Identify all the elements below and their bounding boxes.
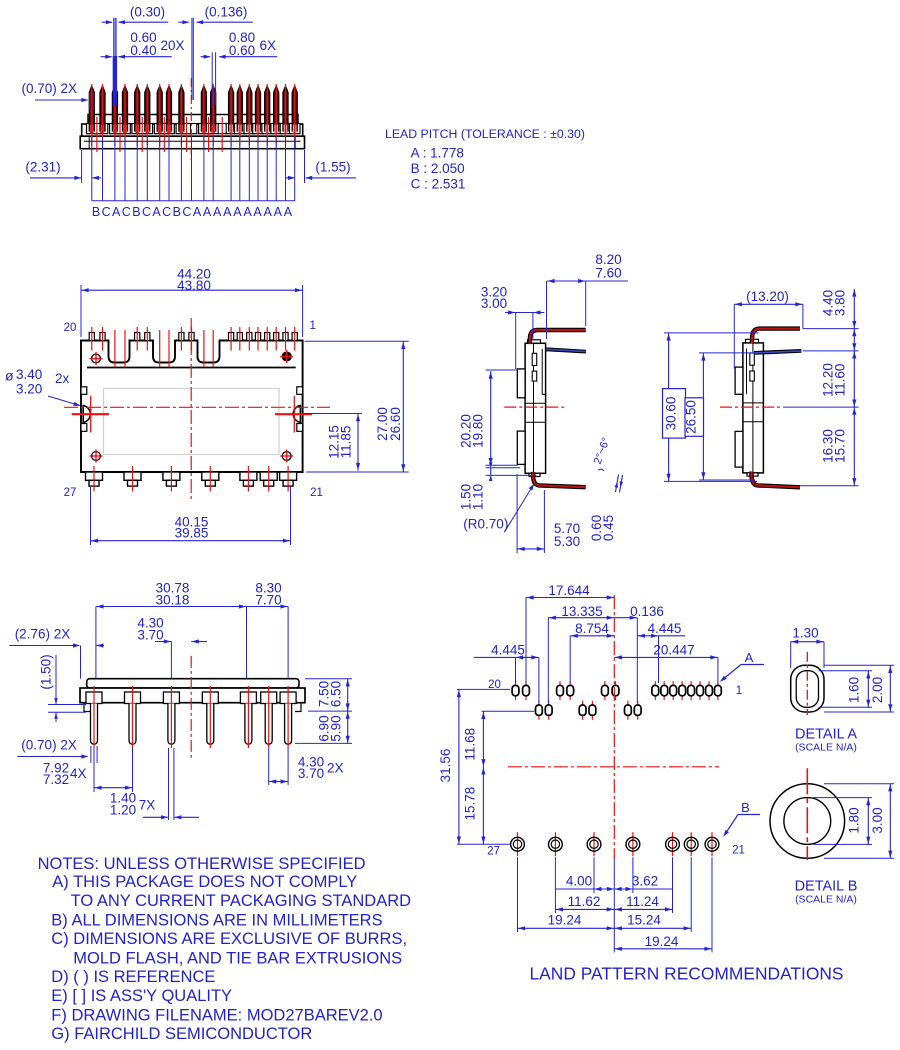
svg-text:(SCALE N/A): (SCALE N/A) bbox=[795, 742, 857, 754]
svg-text:11.24: 11.24 bbox=[626, 894, 659, 909]
svg-text:C: C bbox=[182, 205, 191, 219]
svg-text:0.40: 0.40 bbox=[130, 43, 156, 58]
svg-text:1.10: 1.10 bbox=[471, 484, 486, 510]
svg-text:0.136: 0.136 bbox=[630, 604, 664, 619]
svg-text:2X: 2X bbox=[327, 761, 344, 776]
svg-text:(R0.70): (R0.70) bbox=[463, 517, 508, 532]
svg-text:11.68: 11.68 bbox=[463, 728, 478, 761]
svg-text:F) DRAWING FILENAME: MOD27BARE: F) DRAWING FILENAME: MOD27BAREV2.0 bbox=[51, 1006, 382, 1024]
svg-text:C) DIMENSIONS ARE EXCLUSIVE OF: C) DIMENSIONS ARE EXCLUSIVE OF BURRS, bbox=[51, 930, 407, 948]
svg-text:17.644: 17.644 bbox=[548, 583, 590, 598]
svg-text:G) FAIRCHILD SEMICONDUCTOR: G) FAIRCHILD SEMICONDUCTOR bbox=[51, 1025, 312, 1043]
svg-text:27: 27 bbox=[487, 846, 500, 858]
svg-text:3.62: 3.62 bbox=[632, 873, 658, 888]
svg-text:19.80: 19.80 bbox=[471, 414, 486, 448]
svg-text:A: A bbox=[243, 205, 252, 219]
svg-text:NOTES: UNLESS OTHERWISE SPECIF: NOTES: UNLESS OTHERWISE SPECIFIED bbox=[38, 855, 366, 873]
svg-text:A: A bbox=[274, 205, 283, 219]
svg-text:(2.31): (2.31) bbox=[25, 160, 60, 175]
svg-text:4.445: 4.445 bbox=[648, 621, 682, 636]
svg-text:19.24: 19.24 bbox=[645, 934, 679, 949]
svg-text:3.20: 3.20 bbox=[16, 382, 42, 397]
svg-text:3.70: 3.70 bbox=[298, 766, 324, 781]
svg-text:7X: 7X bbox=[139, 797, 156, 812]
svg-text:4X: 4X bbox=[70, 766, 87, 781]
svg-text:3.80: 3.80 bbox=[833, 290, 848, 316]
svg-text:43.80: 43.80 bbox=[177, 278, 211, 293]
svg-text:20X: 20X bbox=[161, 38, 185, 53]
svg-text:C: C bbox=[102, 205, 111, 219]
svg-text:31.56: 31.56 bbox=[438, 749, 453, 783]
svg-text:C: C bbox=[162, 205, 171, 219]
svg-text:(0.30): (0.30) bbox=[130, 5, 165, 20]
svg-text:B: B bbox=[92, 205, 100, 219]
svg-text:B : 2.050: B : 2.050 bbox=[411, 161, 465, 176]
svg-text:DETAIL B: DETAIL B bbox=[795, 879, 858, 895]
svg-text:8.754: 8.754 bbox=[575, 621, 609, 636]
svg-text:A: A bbox=[233, 205, 242, 219]
svg-text:26.60: 26.60 bbox=[388, 407, 403, 441]
svg-text:15.24: 15.24 bbox=[627, 913, 661, 928]
svg-text:1.60: 1.60 bbox=[847, 677, 862, 703]
svg-text:C: C bbox=[142, 205, 151, 219]
svg-text:11.60: 11.60 bbox=[833, 364, 848, 397]
svg-text:B: B bbox=[132, 205, 140, 219]
svg-text:6.50: 6.50 bbox=[329, 681, 344, 707]
svg-text:E) [ ] IS ASS'Y QUALITY: E) [ ] IS ASS'Y QUALITY bbox=[51, 987, 232, 1005]
svg-text:DETAIL A: DETAIL A bbox=[795, 727, 857, 743]
svg-text:30.18: 30.18 bbox=[156, 592, 190, 607]
svg-text:1: 1 bbox=[736, 685, 742, 697]
svg-text:A: A bbox=[152, 205, 161, 219]
svg-text:30.60: 30.60 bbox=[664, 397, 679, 431]
svg-text:A: A bbox=[112, 205, 121, 219]
svg-text:3.70: 3.70 bbox=[137, 627, 163, 642]
svg-text:21: 21 bbox=[732, 845, 745, 857]
svg-text:(1.55): (1.55) bbox=[315, 160, 350, 175]
svg-text:A: A bbox=[193, 205, 202, 219]
svg-text:LEAD PITCH (TOLERANCE : ±0.30): LEAD PITCH (TOLERANCE : ±0.30) bbox=[385, 127, 585, 141]
svg-text:D) ( ) IS REFERENCE: D) ( ) IS REFERENCE bbox=[51, 968, 215, 986]
svg-text:TO ANY CURRENT PACKAGING STAND: TO ANY CURRENT PACKAGING STANDARD bbox=[71, 892, 412, 910]
svg-text:1.80: 1.80 bbox=[847, 807, 862, 833]
svg-text:11.85: 11.85 bbox=[339, 426, 354, 459]
svg-text:1.20: 1.20 bbox=[110, 802, 136, 817]
svg-text:MOLD FLASH, AND TIE BAR EXTRUS: MOLD FLASH, AND TIE BAR EXTRUSIONS bbox=[73, 949, 402, 967]
svg-text:C : 2.531: C : 2.531 bbox=[411, 177, 466, 192]
svg-text:B: B bbox=[741, 800, 750, 815]
svg-text:1: 1 bbox=[309, 320, 315, 332]
svg-text:A: A bbox=[223, 205, 232, 219]
svg-text:B) ALL DIMENSIONS ARE IN MILLI: B) ALL DIMENSIONS ARE IN MILLIMETERS bbox=[51, 911, 382, 929]
svg-text:3.00: 3.00 bbox=[481, 296, 507, 311]
svg-text:(1.50): (1.50) bbox=[39, 654, 54, 689]
svg-text:26.50: 26.50 bbox=[684, 400, 699, 434]
svg-text:A: A bbox=[253, 205, 262, 219]
svg-text:0.60: 0.60 bbox=[229, 43, 255, 58]
svg-text:27: 27 bbox=[64, 487, 77, 499]
svg-text:(2.76) 2X: (2.76) 2X bbox=[15, 627, 71, 642]
svg-text:20: 20 bbox=[64, 322, 77, 334]
svg-text:13.335: 13.335 bbox=[561, 604, 602, 619]
svg-text:LAND PATTERN RECOMMENDATIONS: LAND PATTERN RECOMMENDATIONS bbox=[530, 964, 844, 984]
svg-text:39.85: 39.85 bbox=[175, 525, 209, 540]
svg-text:2.00: 2.00 bbox=[870, 677, 885, 703]
svg-text:ø: ø bbox=[5, 368, 14, 384]
svg-text:(0.136): (0.136) bbox=[205, 5, 248, 20]
svg-text:15.78: 15.78 bbox=[463, 787, 478, 821]
svg-text:7.70: 7.70 bbox=[255, 592, 281, 607]
svg-text:A : 1.778: A : 1.778 bbox=[411, 146, 464, 161]
svg-text:(0.70) 2X: (0.70) 2X bbox=[22, 81, 78, 96]
svg-text:19.24: 19.24 bbox=[548, 913, 582, 928]
svg-text:7.60: 7.60 bbox=[595, 266, 621, 281]
svg-text:21: 21 bbox=[310, 487, 323, 499]
svg-text:11.62: 11.62 bbox=[568, 894, 601, 909]
svg-text:4.00: 4.00 bbox=[566, 873, 592, 888]
svg-text:20.447: 20.447 bbox=[653, 643, 694, 658]
svg-text:A: A bbox=[203, 205, 212, 219]
svg-text:(SCALE N/A): (SCALE N/A) bbox=[795, 894, 857, 906]
svg-text:A: A bbox=[284, 205, 293, 219]
svg-text:A: A bbox=[745, 650, 754, 665]
svg-text:15.70: 15.70 bbox=[833, 429, 848, 463]
svg-text:(0.70) 2X: (0.70) 2X bbox=[21, 738, 77, 753]
svg-text:4.445: 4.445 bbox=[491, 643, 525, 658]
svg-text:A: A bbox=[213, 205, 222, 219]
svg-text:3.00: 3.00 bbox=[870, 807, 885, 833]
svg-text:A: A bbox=[264, 205, 273, 219]
svg-text:C: C bbox=[122, 205, 131, 219]
svg-text:7.32: 7.32 bbox=[43, 772, 69, 787]
svg-text:1.30: 1.30 bbox=[792, 625, 818, 640]
svg-text:B: B bbox=[173, 205, 181, 219]
svg-text:0.45: 0.45 bbox=[601, 515, 616, 541]
svg-text:5.30: 5.30 bbox=[554, 534, 580, 549]
svg-text:3.40: 3.40 bbox=[16, 367, 42, 382]
svg-text:(13.20): (13.20) bbox=[746, 289, 789, 304]
svg-text:5.90: 5.90 bbox=[329, 715, 344, 741]
svg-text:A) THIS PACKAGE DOES NOT COMPL: A) THIS PACKAGE DOES NOT COMPLY bbox=[52, 873, 357, 891]
svg-text:6X: 6X bbox=[260, 38, 277, 53]
svg-text:2x: 2x bbox=[55, 371, 70, 386]
